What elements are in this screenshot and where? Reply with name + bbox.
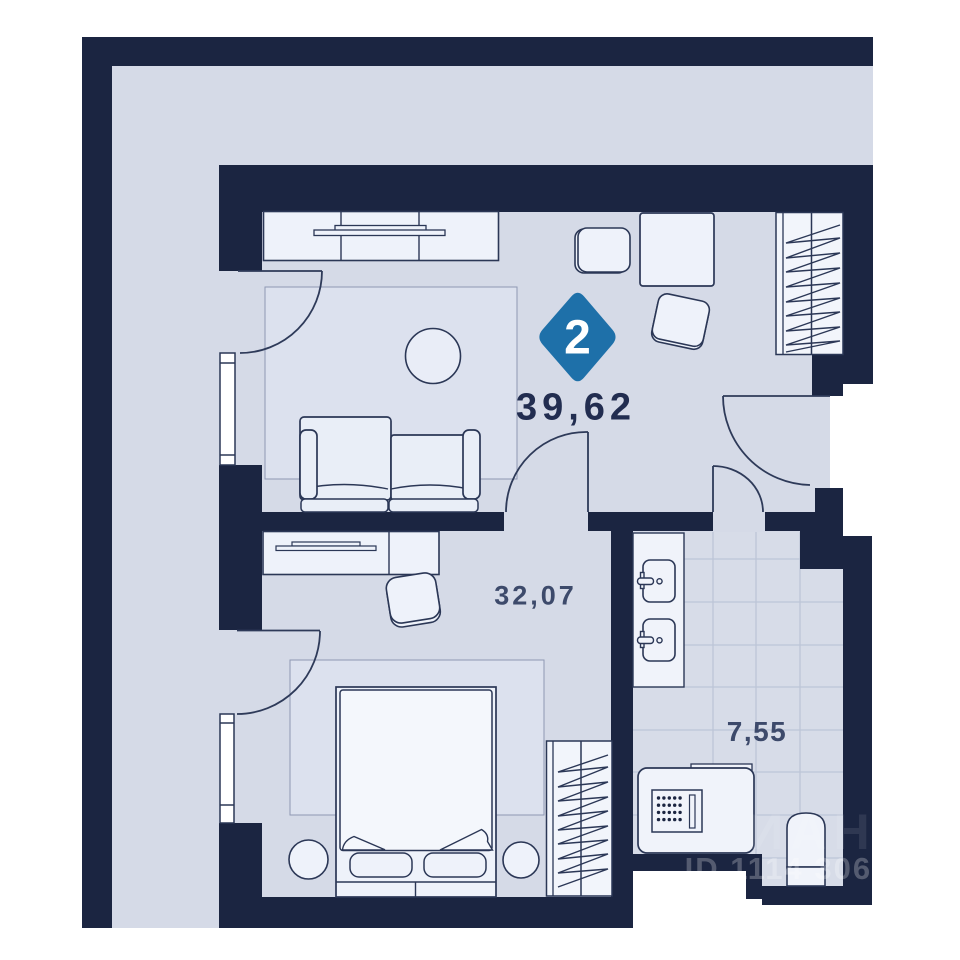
svg-text:2: 2 [564, 312, 591, 365]
svg-text:32,07: 32,07 [494, 580, 577, 610]
svg-text:39,62: 39,62 [516, 387, 636, 429]
svg-text:ID 1114 3067: ID 1114 3067 [685, 851, 892, 886]
svg-text:7,55: 7,55 [727, 716, 788, 747]
